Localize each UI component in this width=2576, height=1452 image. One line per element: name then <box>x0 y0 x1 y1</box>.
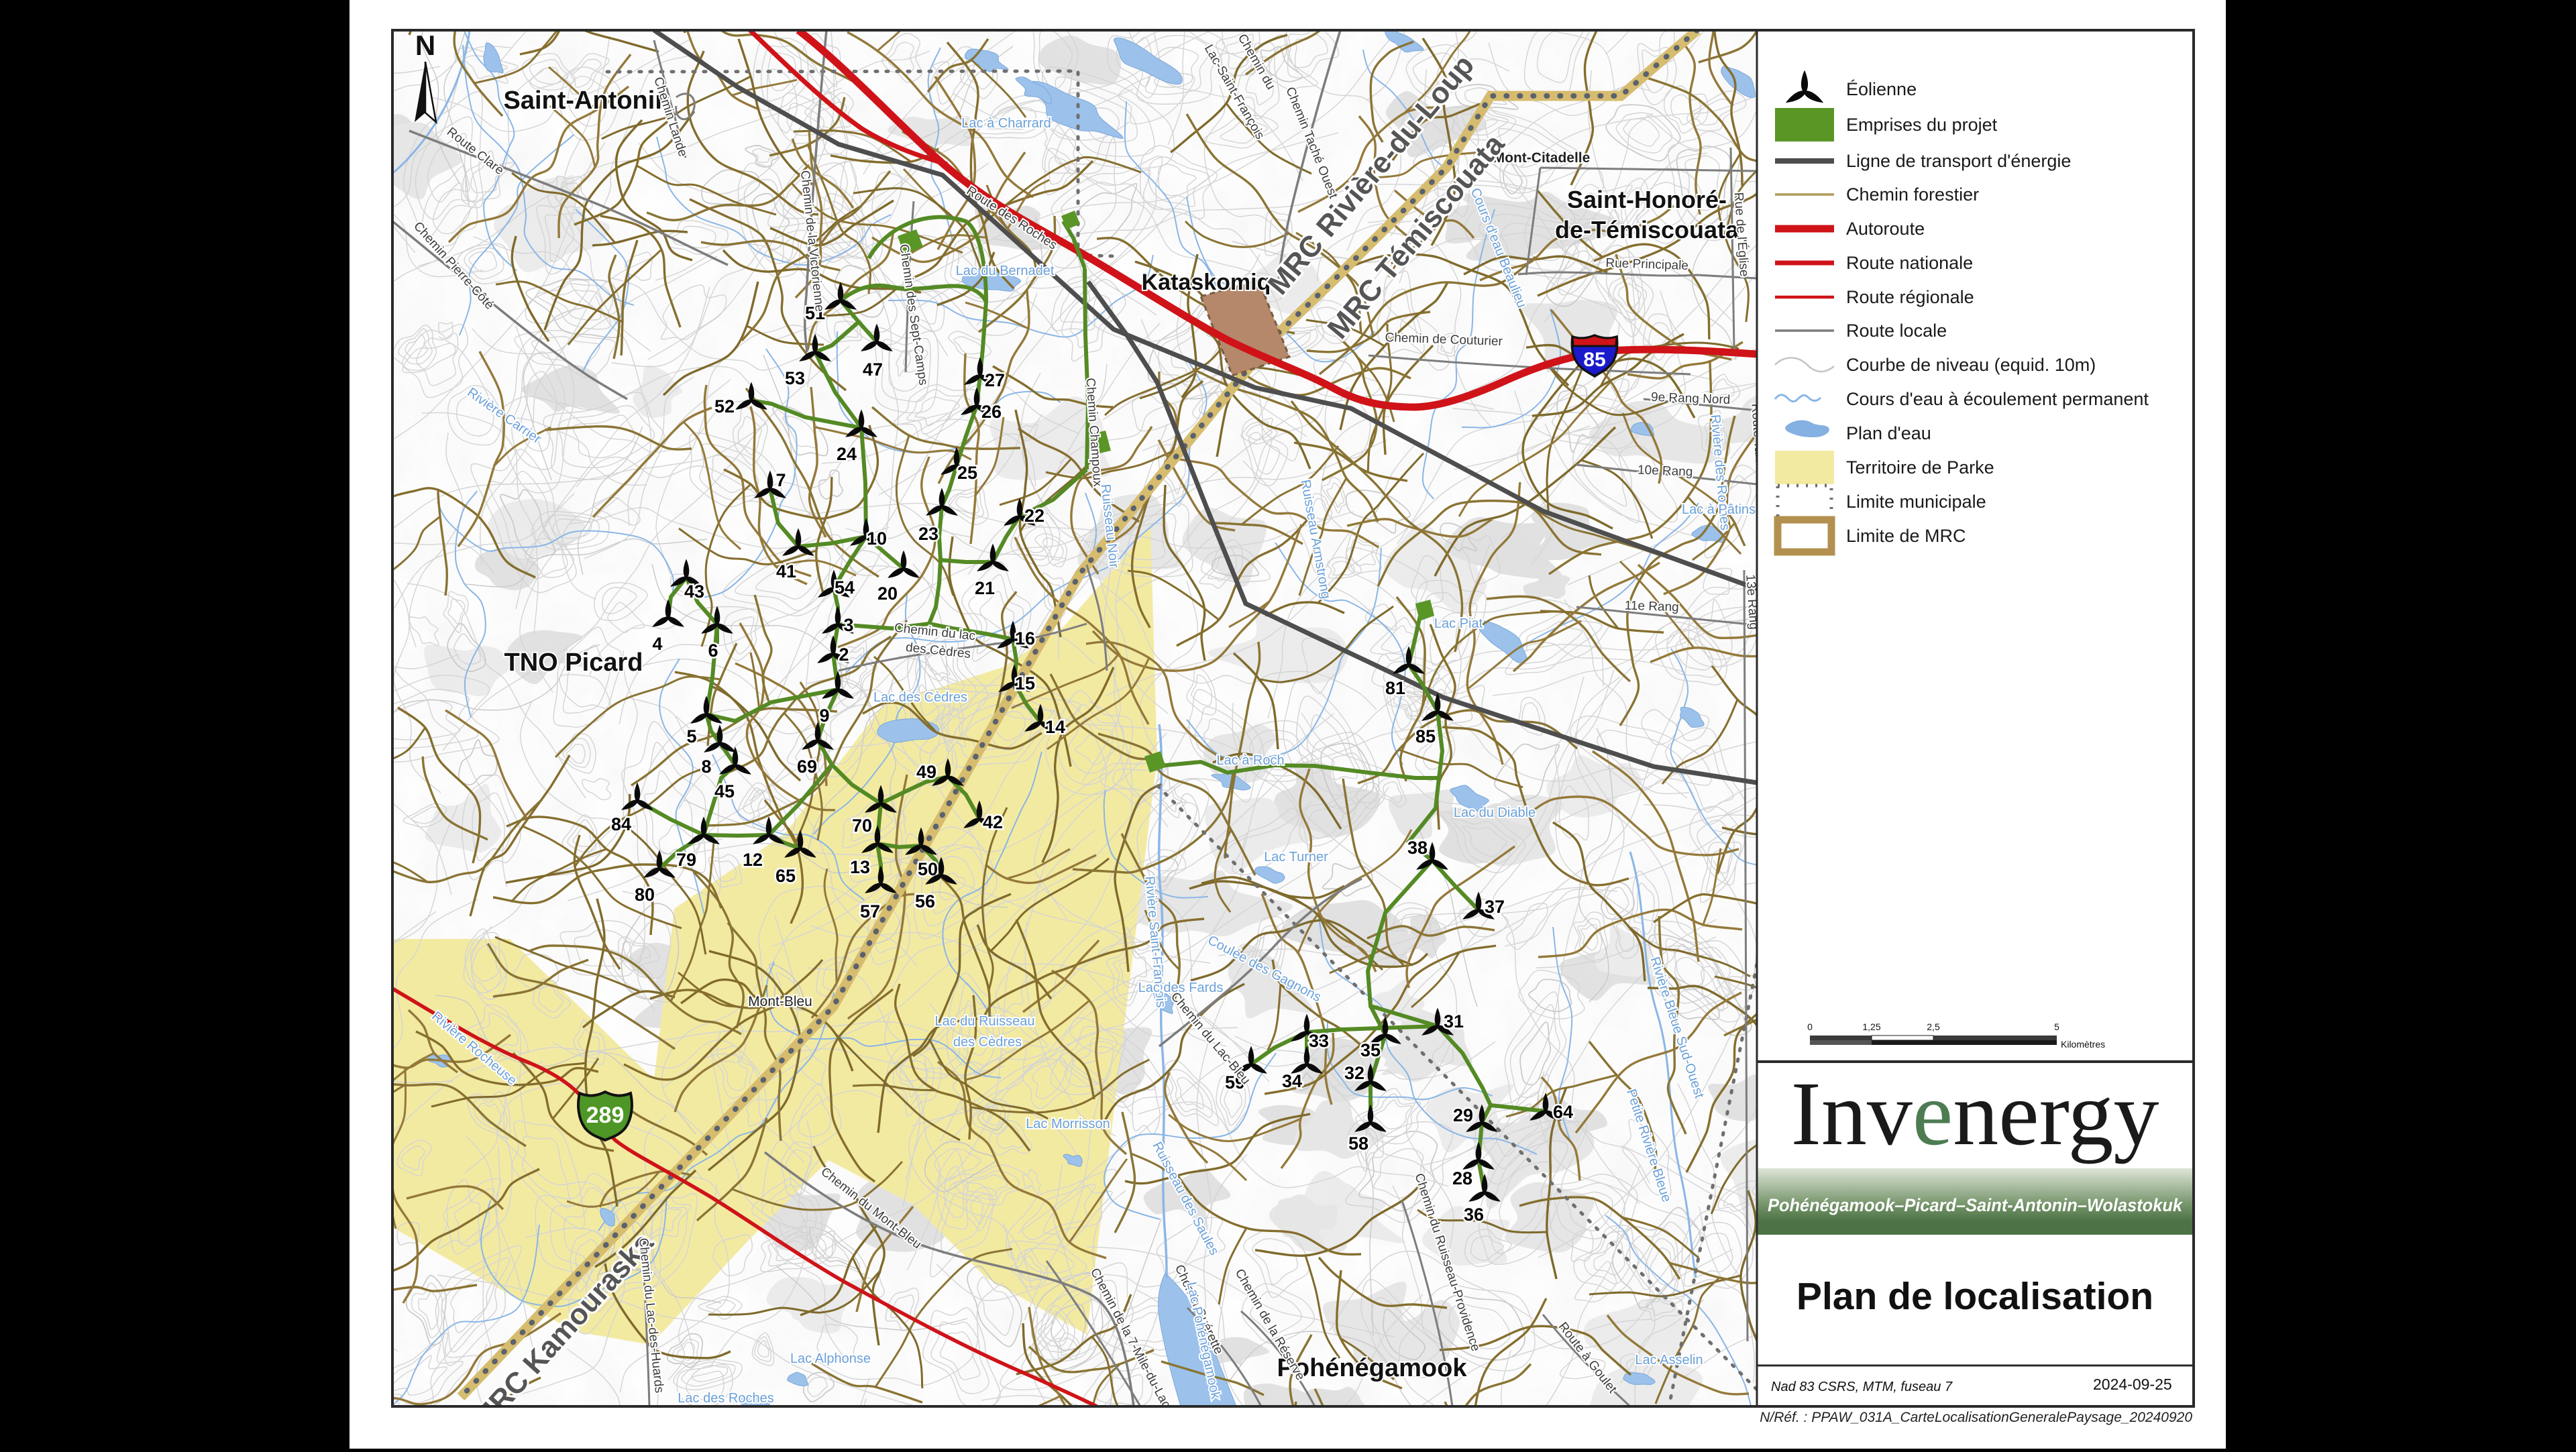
svg-text:20: 20 <box>877 583 898 604</box>
svg-text:0: 0 <box>1807 1021 1813 1032</box>
svg-text:34: 34 <box>1282 1071 1302 1091</box>
svg-text:Route nationale: Route nationale <box>1846 253 1973 273</box>
svg-text:2,5: 2,5 <box>1927 1021 1940 1032</box>
svg-text:69: 69 <box>797 757 817 777</box>
svg-text:33: 33 <box>1309 1031 1329 1051</box>
svg-text:Route régionale: Route régionale <box>1846 287 1974 307</box>
svg-text:Route locale: Route locale <box>1846 321 1947 341</box>
svg-text:Pohénégamook–Picard–Saint-Anto: Pohénégamook–Picard–Saint-Antonin–Wolast… <box>1768 1195 2183 1215</box>
svg-text:Kataskomiq: Kataskomiq <box>1142 270 1271 295</box>
svg-text:Courbe de niveau (equid. 10m): Courbe de niveau (equid. 10m) <box>1846 355 2096 375</box>
svg-text:Invenergy: Invenergy <box>1791 1064 2159 1164</box>
svg-text:4: 4 <box>652 634 662 654</box>
svg-text:37: 37 <box>1485 897 1505 917</box>
svg-text:Lac Piat: Lac Piat <box>1434 616 1483 631</box>
svg-text:35: 35 <box>1360 1040 1381 1060</box>
svg-text:36: 36 <box>1464 1205 1484 1225</box>
svg-text:Chemin forestier: Chemin forestier <box>1846 184 1979 205</box>
svg-text:58: 58 <box>1348 1133 1368 1154</box>
svg-text:Kilomètres: Kilomètres <box>2061 1039 2105 1050</box>
svg-text:21: 21 <box>975 578 995 598</box>
svg-text:52: 52 <box>714 396 735 416</box>
svg-text:79: 79 <box>676 850 696 870</box>
svg-text:Lac des Roches: Lac des Roches <box>678 1391 773 1406</box>
svg-text:9: 9 <box>819 706 829 726</box>
svg-text:57: 57 <box>860 901 880 922</box>
svg-text:289: 289 <box>586 1103 625 1128</box>
svg-text:de-Témiscouata: de-Témiscouata <box>1555 216 1739 243</box>
svg-text:29: 29 <box>1453 1105 1473 1125</box>
svg-text:Territoire de Parke: Territoire de Parke <box>1846 457 1994 478</box>
svg-text:Lac à Charrard: Lac à Charrard <box>961 116 1051 131</box>
svg-text:65: 65 <box>775 866 796 886</box>
svg-text:7: 7 <box>775 470 786 490</box>
svg-text:9e Rang Nord: 9e Rang Nord <box>1651 390 1731 407</box>
svg-text:des Cèdres: des Cèdres <box>953 1035 1022 1050</box>
svg-text:16: 16 <box>1015 628 1035 649</box>
svg-text:84: 84 <box>611 814 631 834</box>
svg-text:3: 3 <box>843 615 853 635</box>
svg-text:41: 41 <box>776 561 796 581</box>
svg-text:26: 26 <box>981 402 1002 422</box>
svg-text:Ligne de transport d'énergie: Ligne de transport d'énergie <box>1846 151 2071 171</box>
svg-text:6: 6 <box>708 640 718 661</box>
svg-text:5: 5 <box>2054 1021 2059 1032</box>
svg-text:12: 12 <box>743 850 763 870</box>
svg-text:47: 47 <box>863 359 883 380</box>
svg-text:85: 85 <box>1415 726 1436 746</box>
svg-text:27: 27 <box>985 370 1005 390</box>
svg-text:54: 54 <box>835 577 855 598</box>
svg-text:Lac du Ruisseau: Lac du Ruisseau <box>935 1014 1035 1029</box>
svg-text:24: 24 <box>837 444 857 464</box>
svg-text:TNO Picard: TNO Picard <box>504 649 643 677</box>
svg-text:85: 85 <box>1583 349 1605 371</box>
svg-text:Plan d'eau: Plan d'eau <box>1846 423 1931 443</box>
svg-text:Lac Morrisson: Lac Morrisson <box>1026 1117 1110 1131</box>
svg-text:15: 15 <box>1015 673 1035 693</box>
svg-text:Lac des Fards: Lac des Fards <box>1138 981 1224 995</box>
svg-text:Plan de localisation: Plan de localisation <box>1796 1275 2153 1318</box>
svg-text:Saint-Honoré-: Saint-Honoré- <box>1567 186 1727 213</box>
svg-text:Cours d'eau à écoulement perma: Cours d'eau à écoulement permanent <box>1846 389 2149 409</box>
svg-text:56: 56 <box>915 891 935 911</box>
svg-text:1,25: 1,25 <box>1862 1021 1880 1032</box>
svg-text:80: 80 <box>635 885 655 905</box>
svg-text:2024-09-25: 2024-09-25 <box>2093 1376 2172 1393</box>
svg-text:70: 70 <box>852 816 872 836</box>
svg-text:22: 22 <box>1024 506 1044 526</box>
svg-text:Éolienne: Éolienne <box>1846 79 1917 99</box>
svg-text:Autoroute: Autoroute <box>1846 219 1925 239</box>
svg-text:5: 5 <box>686 726 696 746</box>
svg-text:Limite municipale: Limite municipale <box>1846 492 1986 512</box>
svg-text:23: 23 <box>918 524 938 544</box>
svg-text:64: 64 <box>1553 1102 1573 1122</box>
svg-text:10e Rang: 10e Rang <box>1638 463 1693 480</box>
svg-text:Lac des Cèdres: Lac des Cèdres <box>873 690 967 705</box>
svg-text:32: 32 <box>1344 1063 1364 1083</box>
svg-text:43: 43 <box>684 581 704 602</box>
svg-text:2: 2 <box>839 645 849 665</box>
svg-text:38: 38 <box>1407 838 1428 858</box>
svg-text:Lac à Roch: Lac à Roch <box>1216 753 1284 768</box>
svg-text:49: 49 <box>916 762 936 782</box>
svg-text:81: 81 <box>1385 678 1405 698</box>
svg-text:N: N <box>415 30 435 61</box>
svg-text:25: 25 <box>957 463 977 483</box>
svg-text:53: 53 <box>785 368 805 388</box>
svg-text:Lac du Diable: Lac du Diable <box>1454 805 1536 820</box>
svg-text:13: 13 <box>850 857 870 877</box>
svg-text:Pohénégamook: Pohénégamook <box>1277 1354 1468 1382</box>
svg-text:Saint-Antonin: Saint-Antonin <box>503 87 670 115</box>
svg-text:28: 28 <box>1452 1168 1472 1188</box>
svg-text:Limite de MRC: Limite de MRC <box>1846 526 1966 546</box>
svg-text:N/Réf. : PPAW_031A_CarteLocal: N/Réf. : PPAW_031A_CarteLocalisationGene… <box>1760 1410 2192 1425</box>
svg-text:Lac Turner: Lac Turner <box>1264 850 1328 864</box>
svg-text:Lac Asselin: Lac Asselin <box>1635 1353 1703 1367</box>
svg-text:11e Rang: 11e Rang <box>1624 599 1679 615</box>
svg-text:Lac du Bernadet: Lac du Bernadet <box>956 264 1055 278</box>
svg-text:42: 42 <box>983 812 1003 832</box>
svg-text:14: 14 <box>1045 717 1065 737</box>
svg-text:10: 10 <box>867 528 887 549</box>
svg-text:Mont-Bleu: Mont-Bleu <box>748 994 812 1009</box>
svg-text:Emprises du projet: Emprises du projet <box>1846 115 1998 135</box>
svg-text:31: 31 <box>1444 1011 1464 1031</box>
svg-text:8: 8 <box>701 757 711 777</box>
svg-text:Lac Alphonse: Lac Alphonse <box>790 1351 871 1366</box>
svg-text:45: 45 <box>714 781 735 801</box>
svg-text:Nad 83 CSRS, MTM, fuseau 7: Nad 83 CSRS, MTM, fuseau 7 <box>1771 1380 1953 1394</box>
svg-text:Lac à Pâtins: Lac à Pâtins <box>1682 502 1756 517</box>
svg-text:Rue Principale: Rue Principale <box>1605 256 1688 273</box>
